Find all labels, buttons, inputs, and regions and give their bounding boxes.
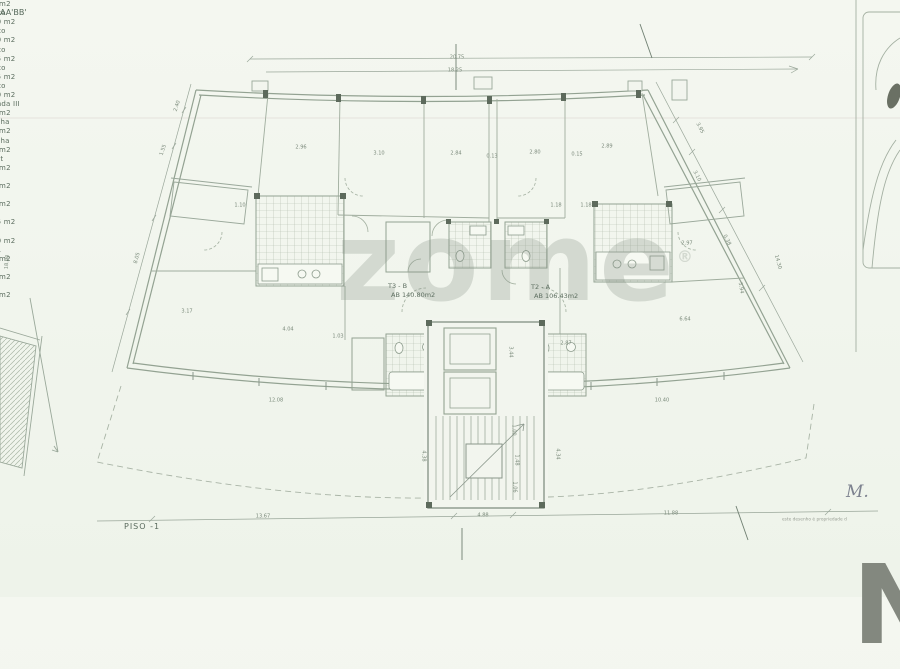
dimension-label: 1.18 xyxy=(550,202,561,208)
room-name: Sala xyxy=(0,209,20,218)
room-label: I.S.4.00 m2 xyxy=(0,282,20,300)
room-area: 4.00 m2 xyxy=(0,164,20,173)
dimension-label: 1.48 xyxy=(514,454,520,465)
room-label: I.S.2.65 m2 xyxy=(0,191,20,209)
watermark-reg-icon: ® xyxy=(677,247,693,266)
section-marker: B' xyxy=(19,8,27,17)
room-label: Quarto13.00 m2 xyxy=(0,82,20,100)
dimension-label: 18.90 xyxy=(3,254,10,269)
room-area: 2.65 m2 xyxy=(0,200,20,209)
dimension-label: 4.04 xyxy=(282,326,293,332)
room-area: 37.55 m2 xyxy=(0,218,20,227)
room-area: 8.10 m2 xyxy=(0,127,20,136)
room-name: Desp. xyxy=(0,246,20,255)
room-label: Cozinha8.10 m2 xyxy=(0,118,20,136)
dimension-label: 4.88 xyxy=(477,512,488,518)
apartment-area: AB 140.80m2 xyxy=(388,291,435,300)
room-label: Quarto13.35 m2 xyxy=(0,64,20,82)
apartment-code: T3 - B xyxy=(388,282,435,291)
dimension-label: 14.30 xyxy=(773,254,783,270)
dimension-label: 0.13 xyxy=(486,153,497,159)
dimension-label: 2.84 xyxy=(450,150,461,156)
dimension-label: 4.34 xyxy=(555,448,561,459)
dimension-label: 6.64 xyxy=(679,316,690,322)
dimension-label: 0.15 xyxy=(571,151,582,157)
labels-layer: zome® PISO -1 Varanda4.25 m2Quarto12.60 … xyxy=(0,0,900,597)
room-area: 3.08 m2 xyxy=(0,182,20,191)
room-area: 13.00 m2 xyxy=(0,91,20,100)
room-label: Sala37.55 m2 xyxy=(0,209,20,227)
dimension-label: 3.17 xyxy=(181,308,192,314)
dimension-label: 3.95 xyxy=(695,122,705,135)
architect-signature: M. xyxy=(846,482,869,502)
copyright-note: este desenho é propriedade d xyxy=(782,517,847,522)
room-name: Quarto xyxy=(0,45,20,54)
dimension-label: 11.88 xyxy=(664,510,679,516)
room-name: Quarto xyxy=(0,64,20,73)
apartment-area: AB 106.43m2 xyxy=(531,292,578,301)
watermark: zome® xyxy=(336,198,693,326)
room-label: Sala31.20 m2 xyxy=(0,227,20,245)
dimension-label: 8.05 xyxy=(133,252,142,265)
watermark-text: zome xyxy=(336,198,677,326)
dimension-label: 2.87 xyxy=(560,340,571,346)
apartment-label: T3 - BAB 140.80m2 xyxy=(388,282,435,300)
room-name: Sala xyxy=(0,227,20,236)
dimension-label: 2.97 xyxy=(681,240,692,246)
dimension-label: 3.44 xyxy=(508,346,514,357)
room-label: Quarto12.25 m2 xyxy=(0,45,20,63)
dimension-label: 0.38 xyxy=(722,234,732,247)
room-area: 11.60 m2 xyxy=(0,36,20,45)
dimension-label: 2.80 xyxy=(529,149,540,155)
apartment-label: T2 - AAB 106.43m2 xyxy=(531,283,578,301)
section-markers-layer: AA'BB' xyxy=(0,0,27,19)
dimension-label: 1.00 xyxy=(511,424,517,435)
room-label: Quarto11.60 m2 xyxy=(0,27,20,45)
room-name: Cozinha xyxy=(0,118,20,127)
room-area: 5.40 m2 xyxy=(0,273,20,282)
room-label: Varanda III4.25 m2 xyxy=(0,100,20,118)
room-label: I.S.3.08 m2 xyxy=(0,173,20,191)
apartment-code: T2 - A xyxy=(531,283,578,292)
floor-label: PISO -1 xyxy=(124,522,160,531)
dimension-label: 1.03 xyxy=(332,333,343,339)
room-area: 12.25 m2 xyxy=(0,55,20,64)
dimension-label: 12.08 xyxy=(269,397,284,403)
dimension-label: 3.10 xyxy=(692,170,702,183)
room-label: Closet4.00 m2 xyxy=(0,155,20,173)
room-name: Varanda III xyxy=(0,100,20,109)
room-name: Closet xyxy=(0,155,20,164)
room-label: Cozinha8.63 m2 xyxy=(0,136,20,154)
dimension-label: 2.89 xyxy=(601,143,612,149)
room-area: 13.35 m2 xyxy=(0,73,20,82)
dimension-label: 1.18 xyxy=(580,202,591,208)
room-area: 31.20 m2 xyxy=(0,236,20,245)
room-area: 4.00 m2 xyxy=(0,291,20,300)
dimension-label: 4.38 xyxy=(421,450,427,461)
dimension-label: 2.40 xyxy=(172,100,181,113)
logo-letter-fragment: N xyxy=(852,550,900,660)
room-name: Quarto xyxy=(0,82,20,91)
dimension-label: 1.55 xyxy=(158,144,167,157)
blueprint-page: zome® PISO -1 Varanda4.25 m2Quarto12.60 … xyxy=(0,0,900,597)
dimension-label: 5.94 xyxy=(737,282,745,294)
room-name: Cozinha xyxy=(0,136,20,145)
room-area: 12.60 m2 xyxy=(0,18,20,27)
dimension-label: 2.96 xyxy=(295,144,306,150)
room-name: I.S. xyxy=(0,173,20,182)
room-name: Quarto xyxy=(0,27,20,36)
room-name: I.S. xyxy=(0,191,20,200)
dimension-label: 3.10 xyxy=(373,150,384,156)
dimension-label: 10.40 xyxy=(655,397,670,403)
room-area: 8.63 m2 xyxy=(0,146,20,155)
dimension-label: 1.10 xyxy=(234,202,245,208)
dimension-label: 1.06 xyxy=(512,481,518,492)
dimension-label: 13.67 xyxy=(256,513,271,519)
room-area: 4.25 m2 xyxy=(0,109,20,118)
dimension-label: 20.75 xyxy=(450,54,465,60)
dimension-label: 18.25 xyxy=(448,67,463,73)
room-name: I.S. xyxy=(0,282,20,291)
